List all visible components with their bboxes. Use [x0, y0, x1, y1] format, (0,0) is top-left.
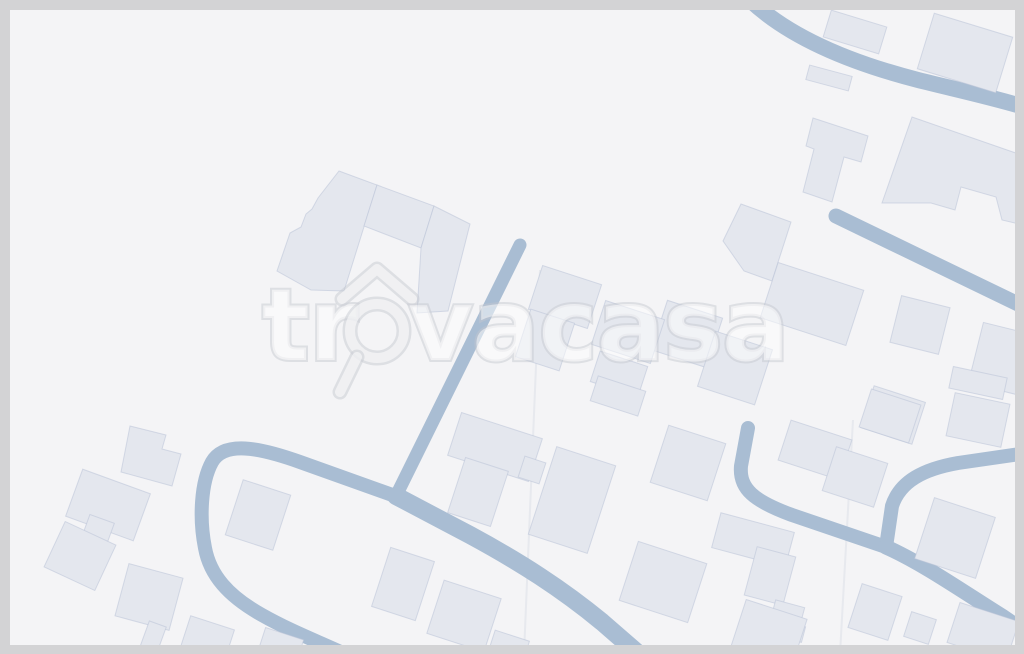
frame-edge — [0, 645, 1024, 654]
frame-edge — [0, 0, 10, 654]
watermark-text-suffix: vacasa — [408, 267, 788, 384]
frame-edge — [1015, 0, 1024, 654]
watermark: tr vacasa — [262, 267, 788, 392]
screenshot-root: tr vacasa — [0, 0, 1024, 654]
map-canvas[interactable]: tr vacasa — [0, 0, 1024, 654]
frame-edge — [0, 0, 1024, 10]
